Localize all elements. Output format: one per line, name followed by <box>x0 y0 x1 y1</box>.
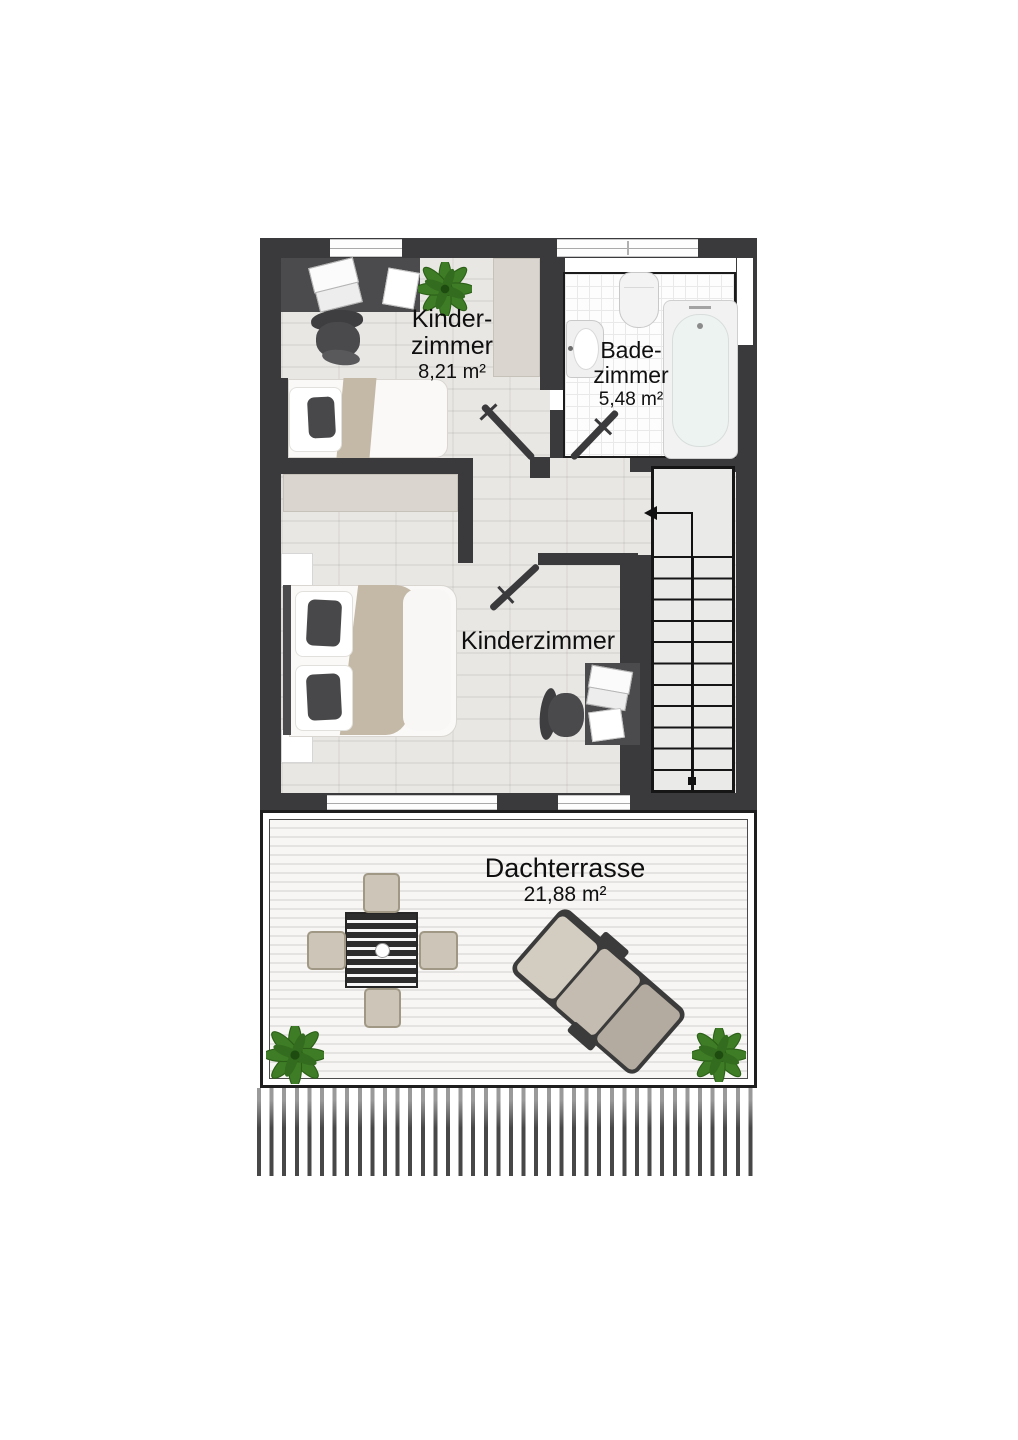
pillow-cushion <box>306 599 342 647</box>
room-label-badezimmer: Bade- zimmer 5,48 m² <box>572 338 690 412</box>
pillow-cushion <box>307 396 336 438</box>
room-label-kinderzimmer-small: Kinder- zimmer 8,21 m² <box>372 306 532 384</box>
bed-blanket-fold <box>403 589 451 731</box>
room-area: 21,88 m² <box>465 883 665 907</box>
paper-sheet <box>382 268 420 310</box>
room-area: 8,21 m² <box>372 360 532 384</box>
window <box>415 795 497 810</box>
terrace-chair <box>364 988 401 1028</box>
room-name-line: Kinderzimmer <box>438 628 638 655</box>
wall-left <box>260 238 281 812</box>
room-label-kinderzimmer-large: Kinderzimmer <box>438 628 638 655</box>
wall-room1-bottom <box>260 458 473 474</box>
room-label-dachterrasse: Dachterrasse 21,88 m² <box>465 854 665 907</box>
terrace-chair <box>363 873 400 913</box>
toilet <box>619 272 659 328</box>
bed-headboard <box>281 378 288 458</box>
floor-plan: Kinder- zimmer 8,21 m² Bade- zimmer 5,48… <box>0 0 1018 1440</box>
room-area: 5,48 m² <box>572 388 690 412</box>
paper-sheet <box>588 708 625 742</box>
dining-table <box>345 912 418 988</box>
wall-corner-block <box>530 457 550 478</box>
stairs-guide-start-dot <box>688 777 696 785</box>
room-name-line: zimmer <box>372 333 532 360</box>
railing <box>257 1088 760 1176</box>
bathtub-drain <box>697 323 703 329</box>
chair-seat <box>548 693 584 737</box>
table-center-hole <box>375 943 390 958</box>
toilet-lid-line <box>624 287 654 288</box>
bed-headboard <box>283 585 291 735</box>
window <box>330 239 402 257</box>
room-name-line: Dachterrasse <box>465 854 665 883</box>
wall-hall-vertical <box>458 458 473 563</box>
single-bed <box>281 378 448 458</box>
bathtub-faucet <box>689 306 711 309</box>
terrace-chair <box>307 931 346 970</box>
pillow-cushion <box>306 673 342 721</box>
wall-bath-left <box>540 250 565 390</box>
office-chair <box>305 306 371 368</box>
wardrobe <box>283 474 458 512</box>
room-name-line: zimmer <box>572 363 690 388</box>
laptop <box>585 665 633 712</box>
stairs-guide-line <box>691 513 693 781</box>
room-name-line: Bade- <box>572 338 690 363</box>
office-chair <box>538 684 590 746</box>
nightstand <box>281 553 313 587</box>
double-bed <box>283 585 455 735</box>
plant <box>692 1028 746 1082</box>
stairs-guide-line-h <box>656 512 693 514</box>
plant <box>266 1026 324 1084</box>
window <box>558 795 630 810</box>
room-name-line: Kinder- <box>372 306 532 333</box>
window-divider <box>627 241 629 255</box>
bed-blanket <box>337 378 377 458</box>
stairs-direction-arrow <box>644 506 657 520</box>
terrace-chair <box>419 931 458 970</box>
window-recess-right <box>737 258 753 345</box>
window <box>327 795 415 810</box>
